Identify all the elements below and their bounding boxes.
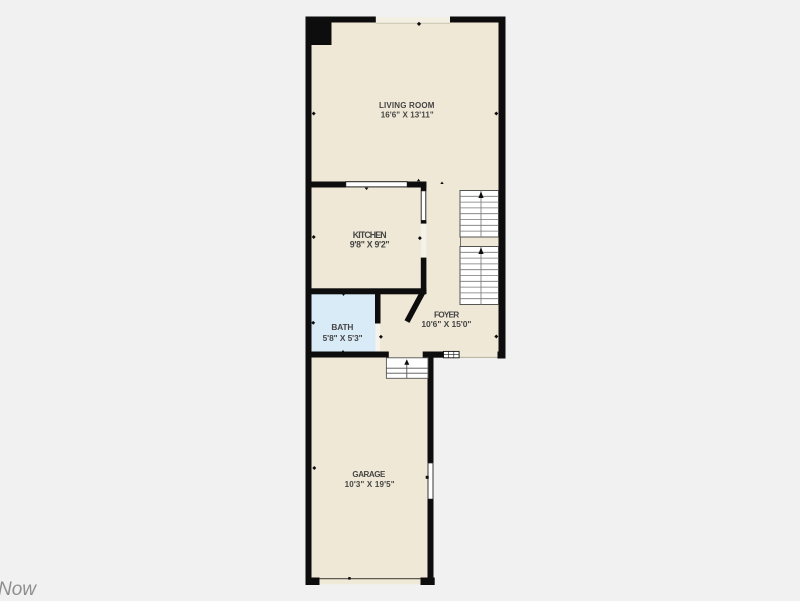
svg-text:BATH: BATH (331, 322, 353, 332)
svg-text:LIVING ROOM: LIVING ROOM (379, 101, 435, 110)
svg-text:10'3" X 19'5": 10'3" X 19'5" (345, 480, 395, 489)
svg-text:GARAGE: GARAGE (352, 470, 386, 479)
svg-text:9'8" X 9'2": 9'8" X 9'2" (350, 240, 390, 250)
svg-text:10'6" X 15'0": 10'6" X 15'0" (421, 319, 471, 329)
svg-text:16'6" X 13'11": 16'6" X 13'11" (381, 111, 434, 120)
svg-text:FOYER: FOYER (434, 309, 459, 319)
svg-text:KITCHEN: KITCHEN (353, 230, 387, 240)
svg-text:5'8" X 5'3": 5'8" X 5'3" (323, 333, 363, 343)
